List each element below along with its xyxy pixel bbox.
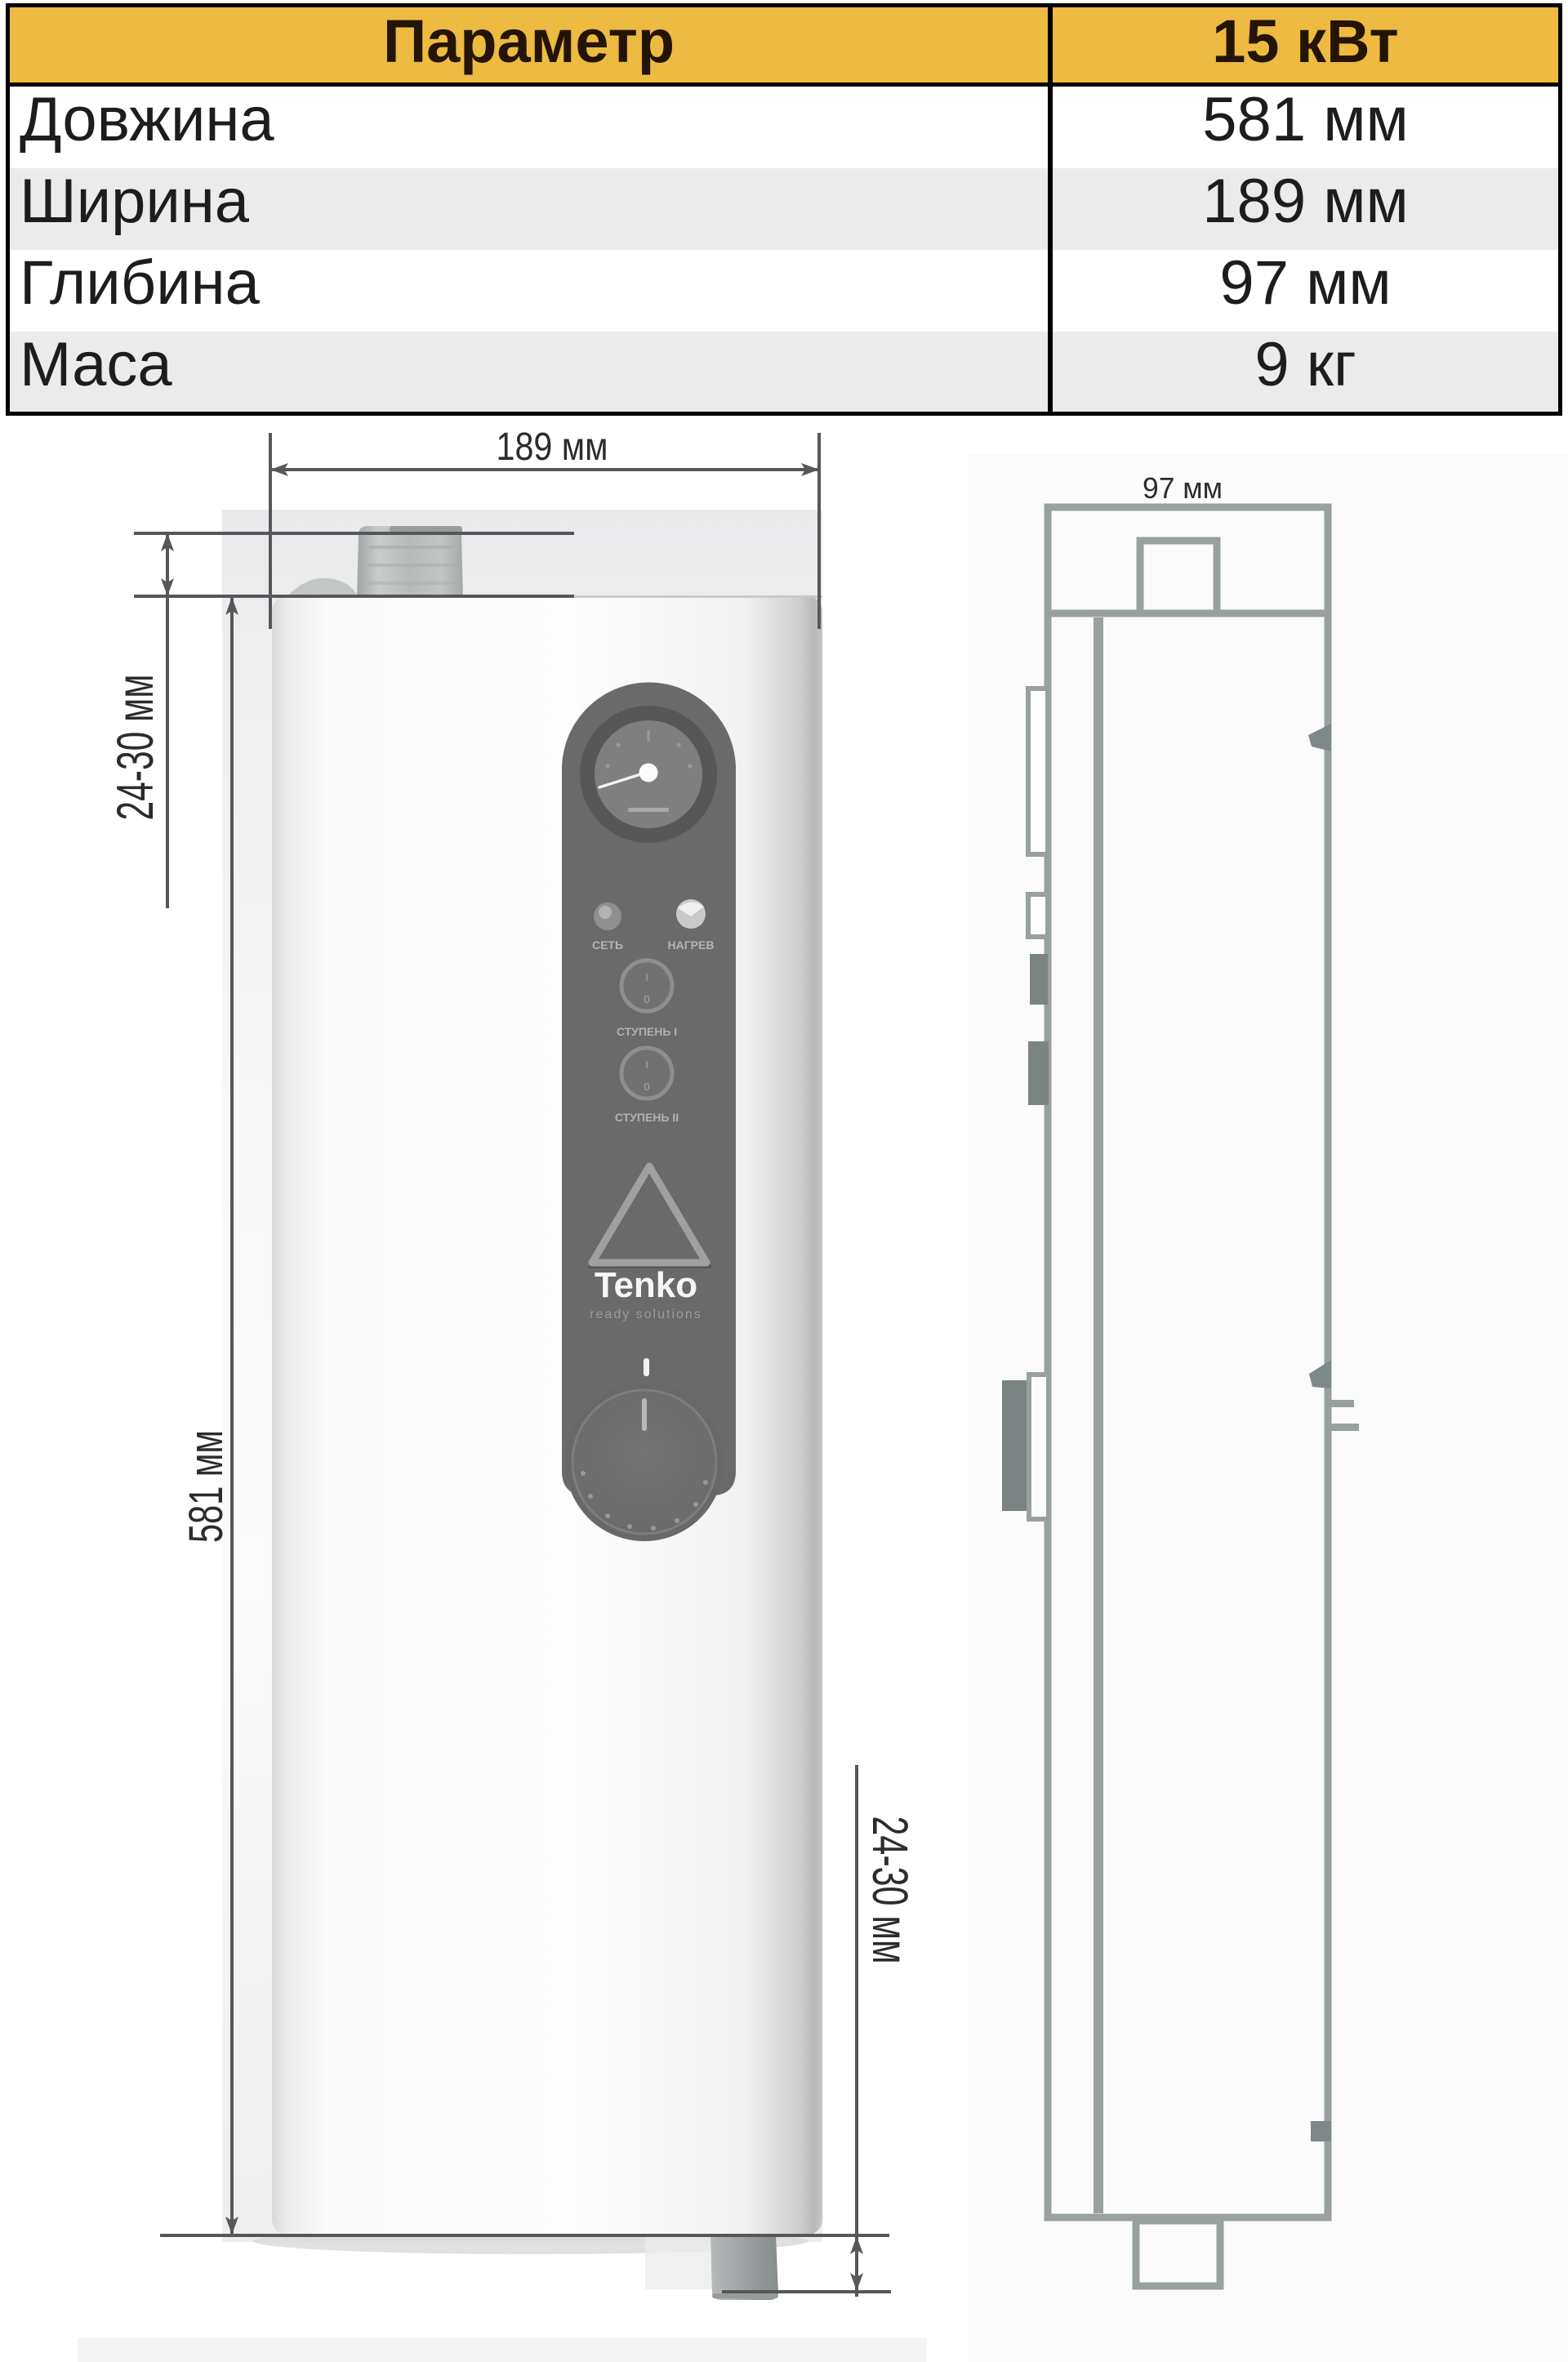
svg-text:I: I: [645, 1058, 648, 1071]
svg-text:0: 0: [644, 993, 649, 1005]
svg-text:НАГРЕВ: НАГРЕВ: [668, 938, 715, 951]
svg-text:24-30 мм: 24-30 мм: [862, 1816, 918, 1964]
svg-text:I: I: [645, 971, 648, 983]
svg-text:0: 0: [644, 1081, 649, 1093]
svg-text:97 мм: 97 мм: [1143, 471, 1223, 505]
svg-text:581 мм: 581 мм: [180, 1430, 233, 1543]
svg-text:189 мм: 189 мм: [497, 426, 608, 469]
svg-text:СЕТЬ: СЕТЬ: [592, 938, 623, 951]
svg-text:24-30 мм: 24-30 мм: [107, 675, 164, 821]
svg-text:Tenko: Tenko: [595, 1265, 697, 1305]
svg-text:СТУПЕНЬ I: СТУПЕНЬ I: [617, 1025, 677, 1038]
svg-text:СТУПЕНЬ II: СТУПЕНЬ II: [615, 1111, 679, 1124]
svg-text:ready solutions: ready solutions: [590, 1308, 702, 1321]
